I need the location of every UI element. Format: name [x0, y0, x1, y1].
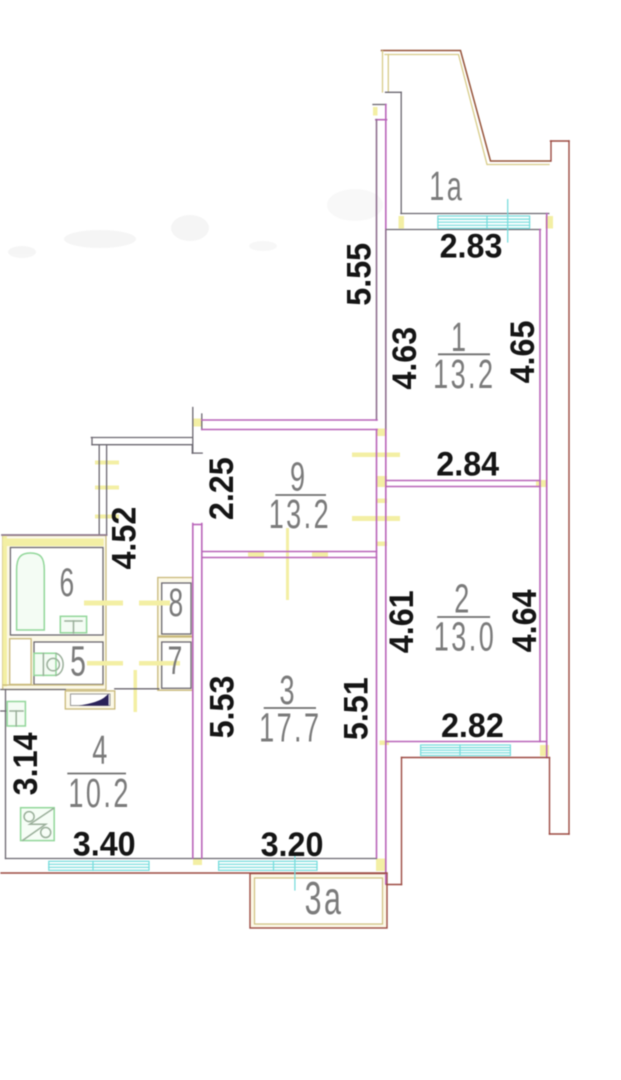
svg-text:7: 7: [168, 639, 185, 684]
svg-text:13.0: 13.0: [434, 615, 496, 660]
svg-text:4.52: 4.52: [106, 507, 144, 570]
svg-text:2.82: 2.82: [441, 707, 504, 745]
svg-text:10.2: 10.2: [68, 772, 130, 817]
svg-text:17.7: 17.7: [259, 706, 321, 751]
svg-text:8: 8: [169, 581, 186, 626]
svg-text:13.2: 13.2: [269, 493, 331, 538]
svg-text:13.2: 13.2: [433, 352, 495, 397]
svg-text:6: 6: [59, 561, 76, 606]
svg-text:4: 4: [92, 729, 109, 774]
svg-text:3.14: 3.14: [7, 732, 45, 795]
svg-text:2.84: 2.84: [436, 446, 499, 484]
svg-text:3.40: 3.40: [73, 826, 136, 864]
svg-text:4.64: 4.64: [506, 589, 544, 652]
svg-text:5.51: 5.51: [338, 677, 376, 740]
svg-text:4.63: 4.63: [386, 327, 424, 390]
svg-text:4.65: 4.65: [504, 321, 542, 384]
svg-text:3a: 3a: [305, 874, 344, 925]
svg-text:5.55: 5.55: [341, 243, 379, 306]
svg-text:3.20: 3.20: [261, 826, 324, 864]
svg-text:5.53: 5.53: [204, 676, 242, 739]
svg-text:2.83: 2.83: [440, 228, 503, 266]
svg-text:1a: 1a: [429, 165, 464, 210]
svg-text:2.25: 2.25: [203, 457, 241, 520]
svg-text:4.61: 4.61: [383, 590, 421, 653]
svg-text:5: 5: [70, 637, 88, 685]
